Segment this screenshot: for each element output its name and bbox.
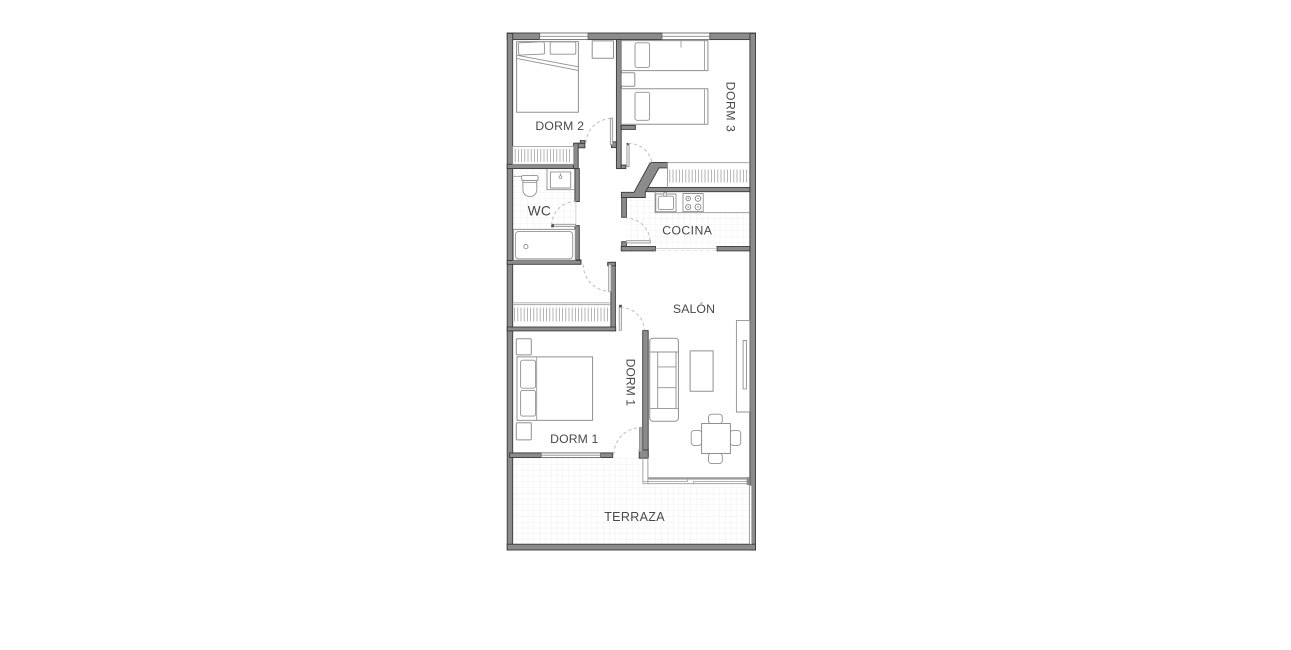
svg-text:DORM 2: DORM 2 <box>535 119 584 133</box>
svg-text:DORM 1: DORM 1 <box>550 432 598 446</box>
svg-text:DORM 3: DORM 3 <box>724 82 738 133</box>
svg-text:COCINA: COCINA <box>662 224 713 238</box>
svg-text:SALÓN: SALÓN <box>673 301 715 316</box>
svg-text:DORM 1: DORM 1 <box>624 359 638 407</box>
svg-text:WC: WC <box>528 203 551 218</box>
svg-text:TERRAZA: TERRAZA <box>604 510 665 524</box>
